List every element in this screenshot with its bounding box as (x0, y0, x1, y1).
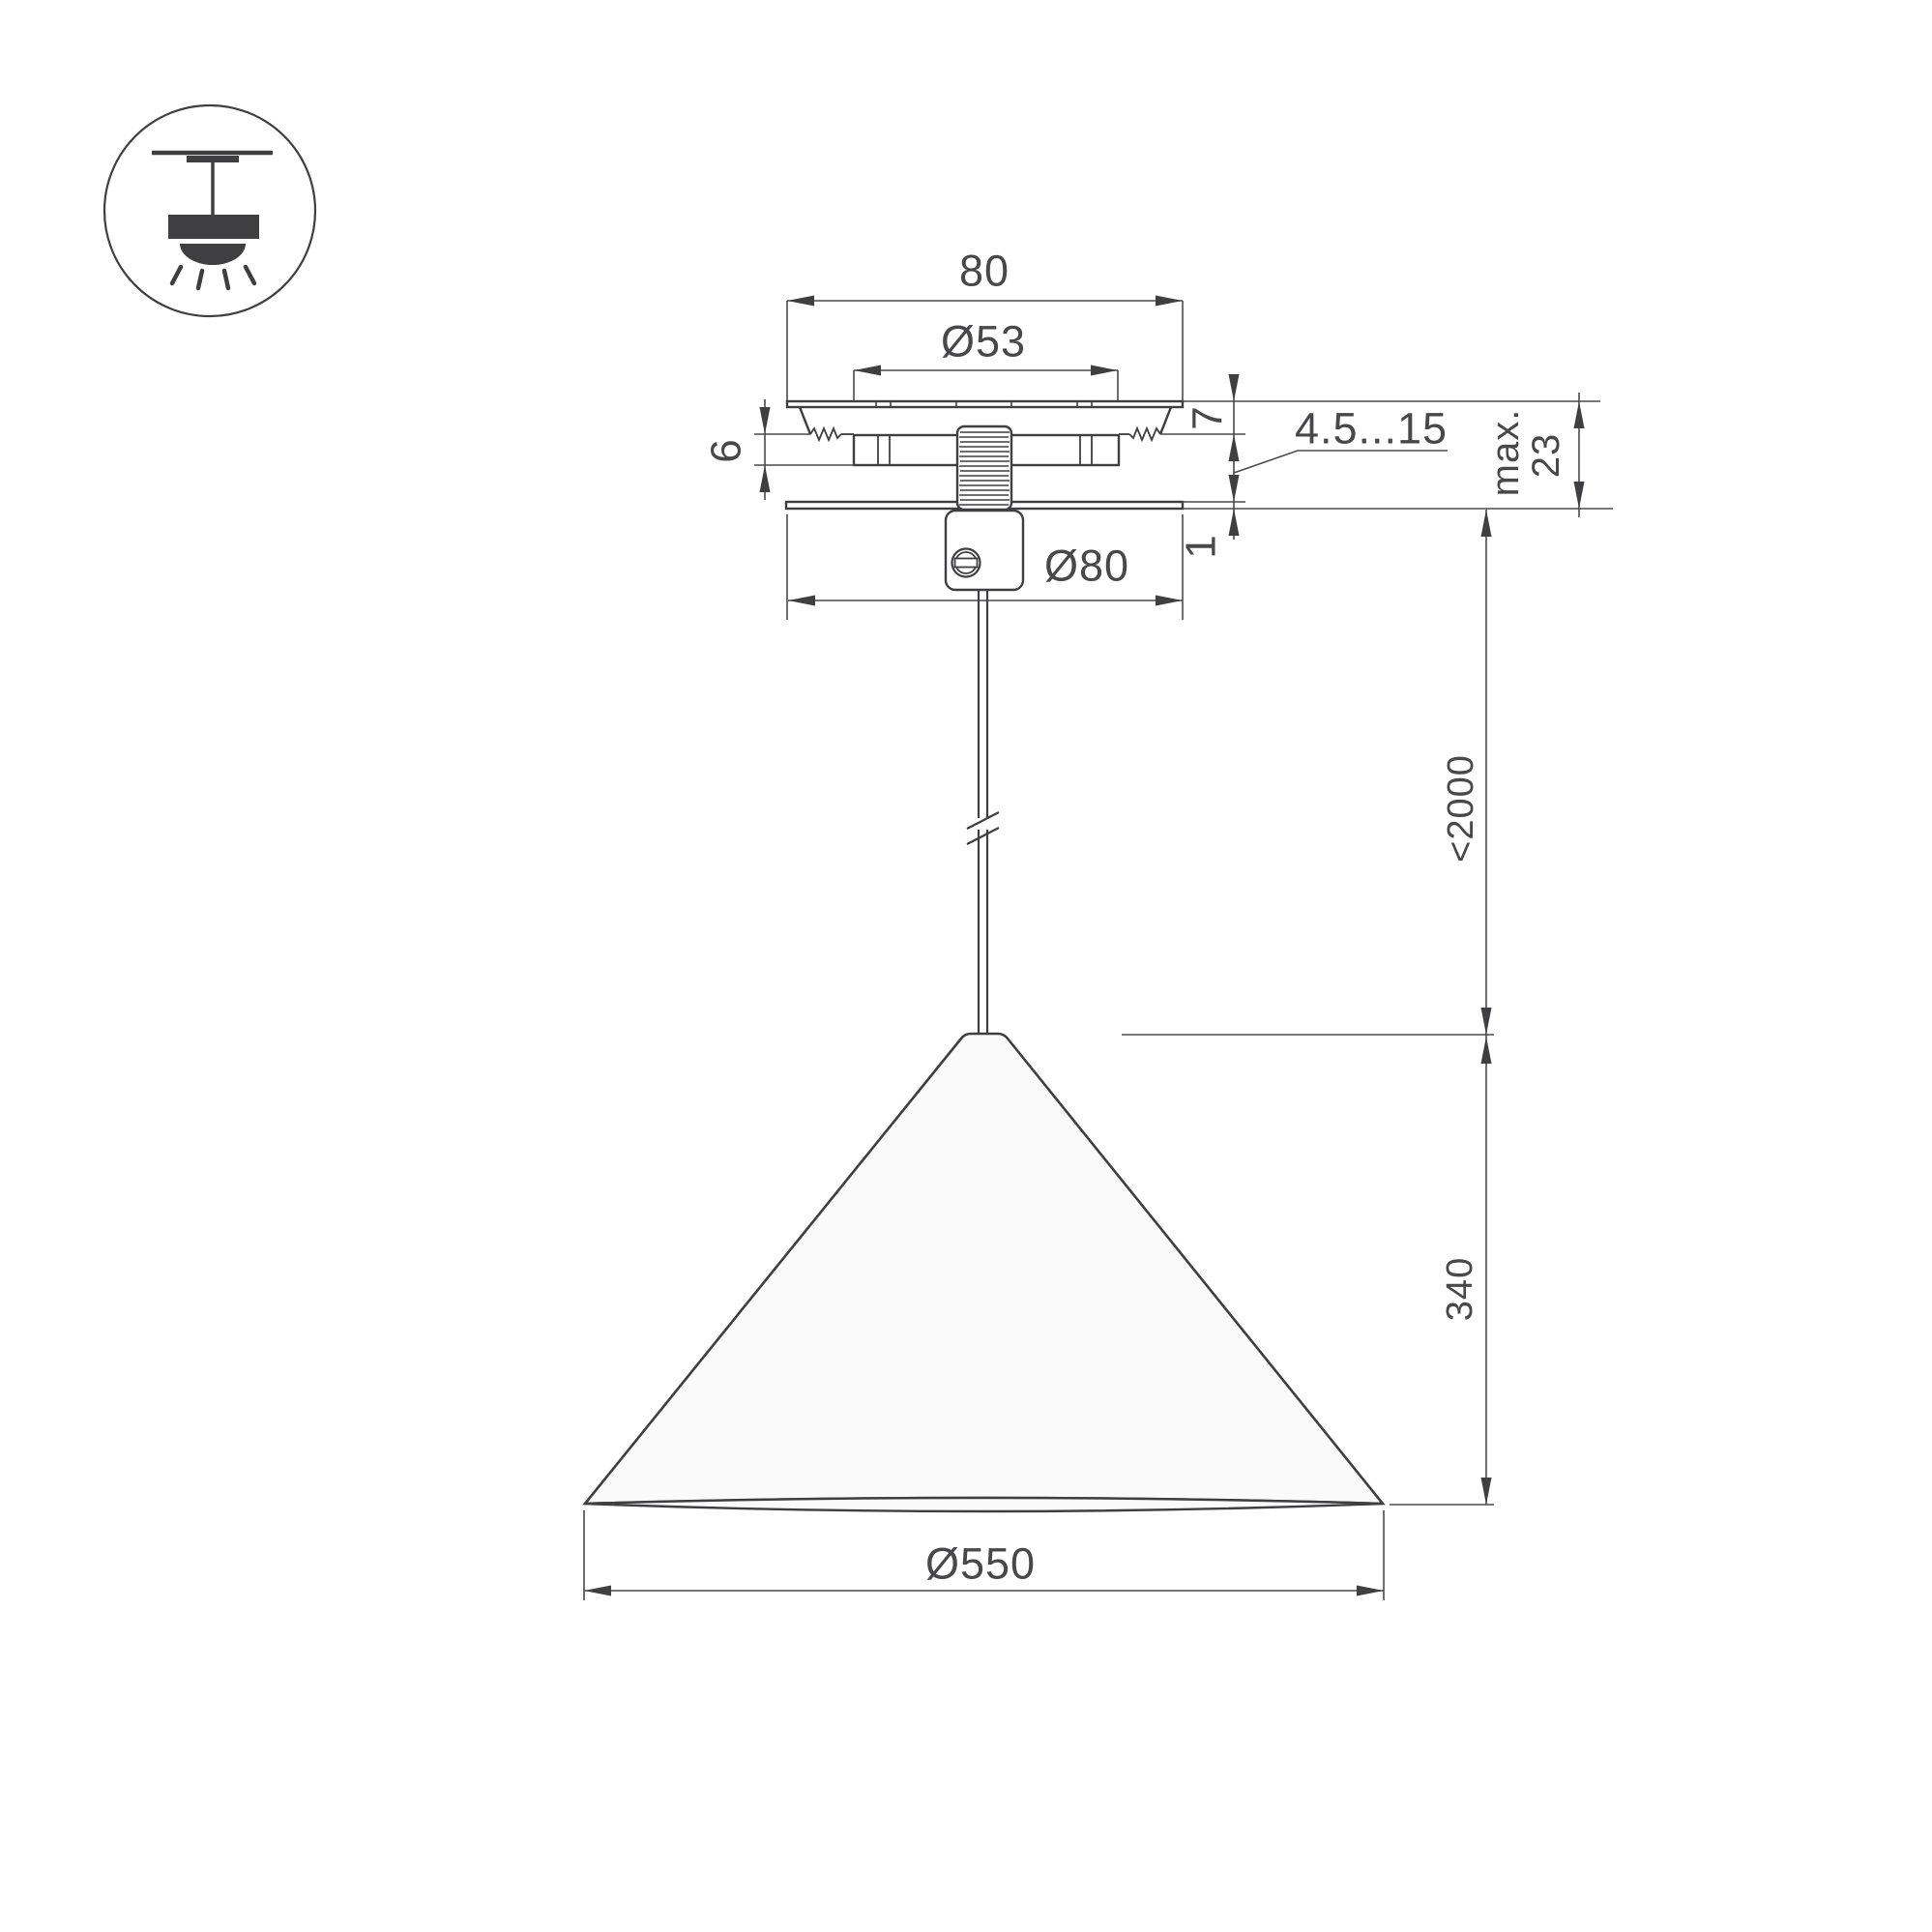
cable-break-slash-lower (967, 828, 999, 844)
icon-lamp-diffuser (180, 244, 246, 265)
threaded-rod (957, 426, 1011, 510)
dim-max-depth-label-line2: 23 (1525, 433, 1567, 479)
dim-max-depth: max. 23 (1484, 393, 1585, 517)
dim-hole-diameter: Ø53 (854, 317, 1118, 401)
dim-base-plate-thickness-label: 1 (1178, 534, 1225, 558)
icon-lamp-body (168, 215, 259, 239)
dim-shade-diameter: Ø550 (584, 1510, 1384, 1600)
drawing-page: { "drawing": { "title": "pendant-lamp-di… (0, 0, 1932, 1932)
dim-spring-height-label: 6 (703, 438, 750, 462)
canopy-right-slant (1160, 407, 1171, 434)
canopy-top-plate (787, 401, 1183, 407)
dim-spring-height: 6 (703, 399, 771, 500)
ceiling-range-leader (1234, 451, 1448, 473)
dim-shade-height-label: 340 (1440, 1257, 1480, 1321)
dim-shade-diameter-label: Ø550 (925, 1539, 1036, 1589)
dim-shade-height: 340 (1390, 1037, 1494, 1505)
icon-mount-plate (187, 156, 239, 162)
lamp-shade-cone (585, 1034, 1383, 1511)
cable-break-slash-upper (967, 812, 999, 829)
cord-grip-block (946, 511, 1023, 590)
pendant-mount-icon (104, 105, 315, 316)
icon-light-rays (172, 267, 254, 288)
screw-slot (955, 559, 978, 568)
dim-canopy-width-label: 80 (959, 247, 1010, 296)
shade-body (585, 1034, 1383, 1504)
shade-rim-ellipse (585, 1498, 1383, 1511)
canopy-left-slant (800, 407, 810, 434)
right-spring-zigzag (1129, 428, 1160, 440)
dim-canopy-diameter-label: Ø80 (1044, 542, 1129, 591)
icon-circle (104, 105, 315, 316)
dim-hole-diameter-label: Ø53 (941, 317, 1026, 366)
dim-max-depth-label-line1: max. (1484, 409, 1527, 497)
left-spring-zigzag (810, 428, 841, 440)
technical-drawing: 80 Ø53 6 7 1 4.5...15 max. 23 (0, 0, 1932, 1932)
dim-cable-length-label: <2000 (1441, 754, 1481, 863)
suspension-cable (967, 590, 999, 1034)
dim-ceiling-range-label: 4.5...15 (1295, 404, 1448, 454)
dim-plate-height-label: 7 (1185, 405, 1232, 429)
